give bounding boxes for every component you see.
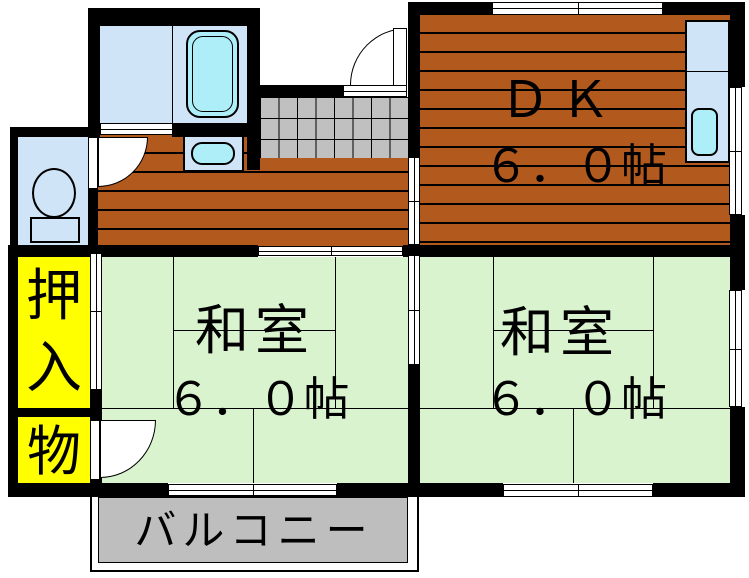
closet-label-bottom: 入 [20,334,88,404]
japanese-room-left-sliding-door [258,246,403,256]
japanese-room-right-side-window [729,290,742,407]
wall-segment [730,245,745,290]
closet-label-top: 押 [20,262,88,332]
fusuma-between-rooms [408,255,420,365]
wall-segment [408,2,492,15]
wall-segment [653,483,745,497]
dk-sliding-door [408,157,420,245]
wall-segment [88,8,258,26]
japanese-room-left-label: 和室 [155,300,355,362]
dk-top-window [492,2,663,15]
toilet-door-leaf [88,137,98,189]
toilet-tank [30,217,80,243]
genkan-tile-floor [260,97,408,158]
washbasin-sink [191,142,235,165]
bath-divider-line [172,26,173,123]
closet-sliding-door [90,253,102,390]
wall-segment [8,245,18,497]
dk-floor [420,15,730,245]
wall-segment [10,127,18,247]
bathtub [186,30,239,118]
storage-door-leaf [90,420,100,480]
dk-label: ＤＫ [455,70,665,130]
entry-door-sill [343,85,407,97]
wall-segment [408,365,420,483]
washroom-sliding-door [100,123,173,135]
wall-segment [403,245,745,257]
floor-plan: ＤＫ ６．０帖 和室 ６．０帖 和室 ６．０帖 押 入 物 バルコニー [0,0,749,578]
wall-segment [88,188,98,247]
dk-right-window [729,87,742,215]
wall-segment [408,2,420,157]
storage-label: 物 [20,418,88,486]
kitchen-counter-divider [686,71,729,72]
balcony-label: バルコニー [100,502,408,560]
wall-segment [88,8,100,137]
wall-segment [90,388,102,420]
wall-segment [10,127,98,137]
wall-segment [8,245,258,257]
entry-door-leaf [393,28,407,86]
wall-segment [258,85,343,97]
japanese-room-right-size-label: ６．０帖 [455,368,695,430]
hallway-floor-right [250,158,408,247]
toilet-bowl [32,168,76,218]
japanese-room-right-bottom-window [503,484,653,497]
japanese-room-left-size-label: ６．０帖 [150,368,365,430]
dk-size-label: ６．０帖 [450,135,700,197]
washroom-floor [100,26,172,123]
wall-segment [730,2,745,87]
japanese-room-right-label: 和室 [460,302,660,364]
